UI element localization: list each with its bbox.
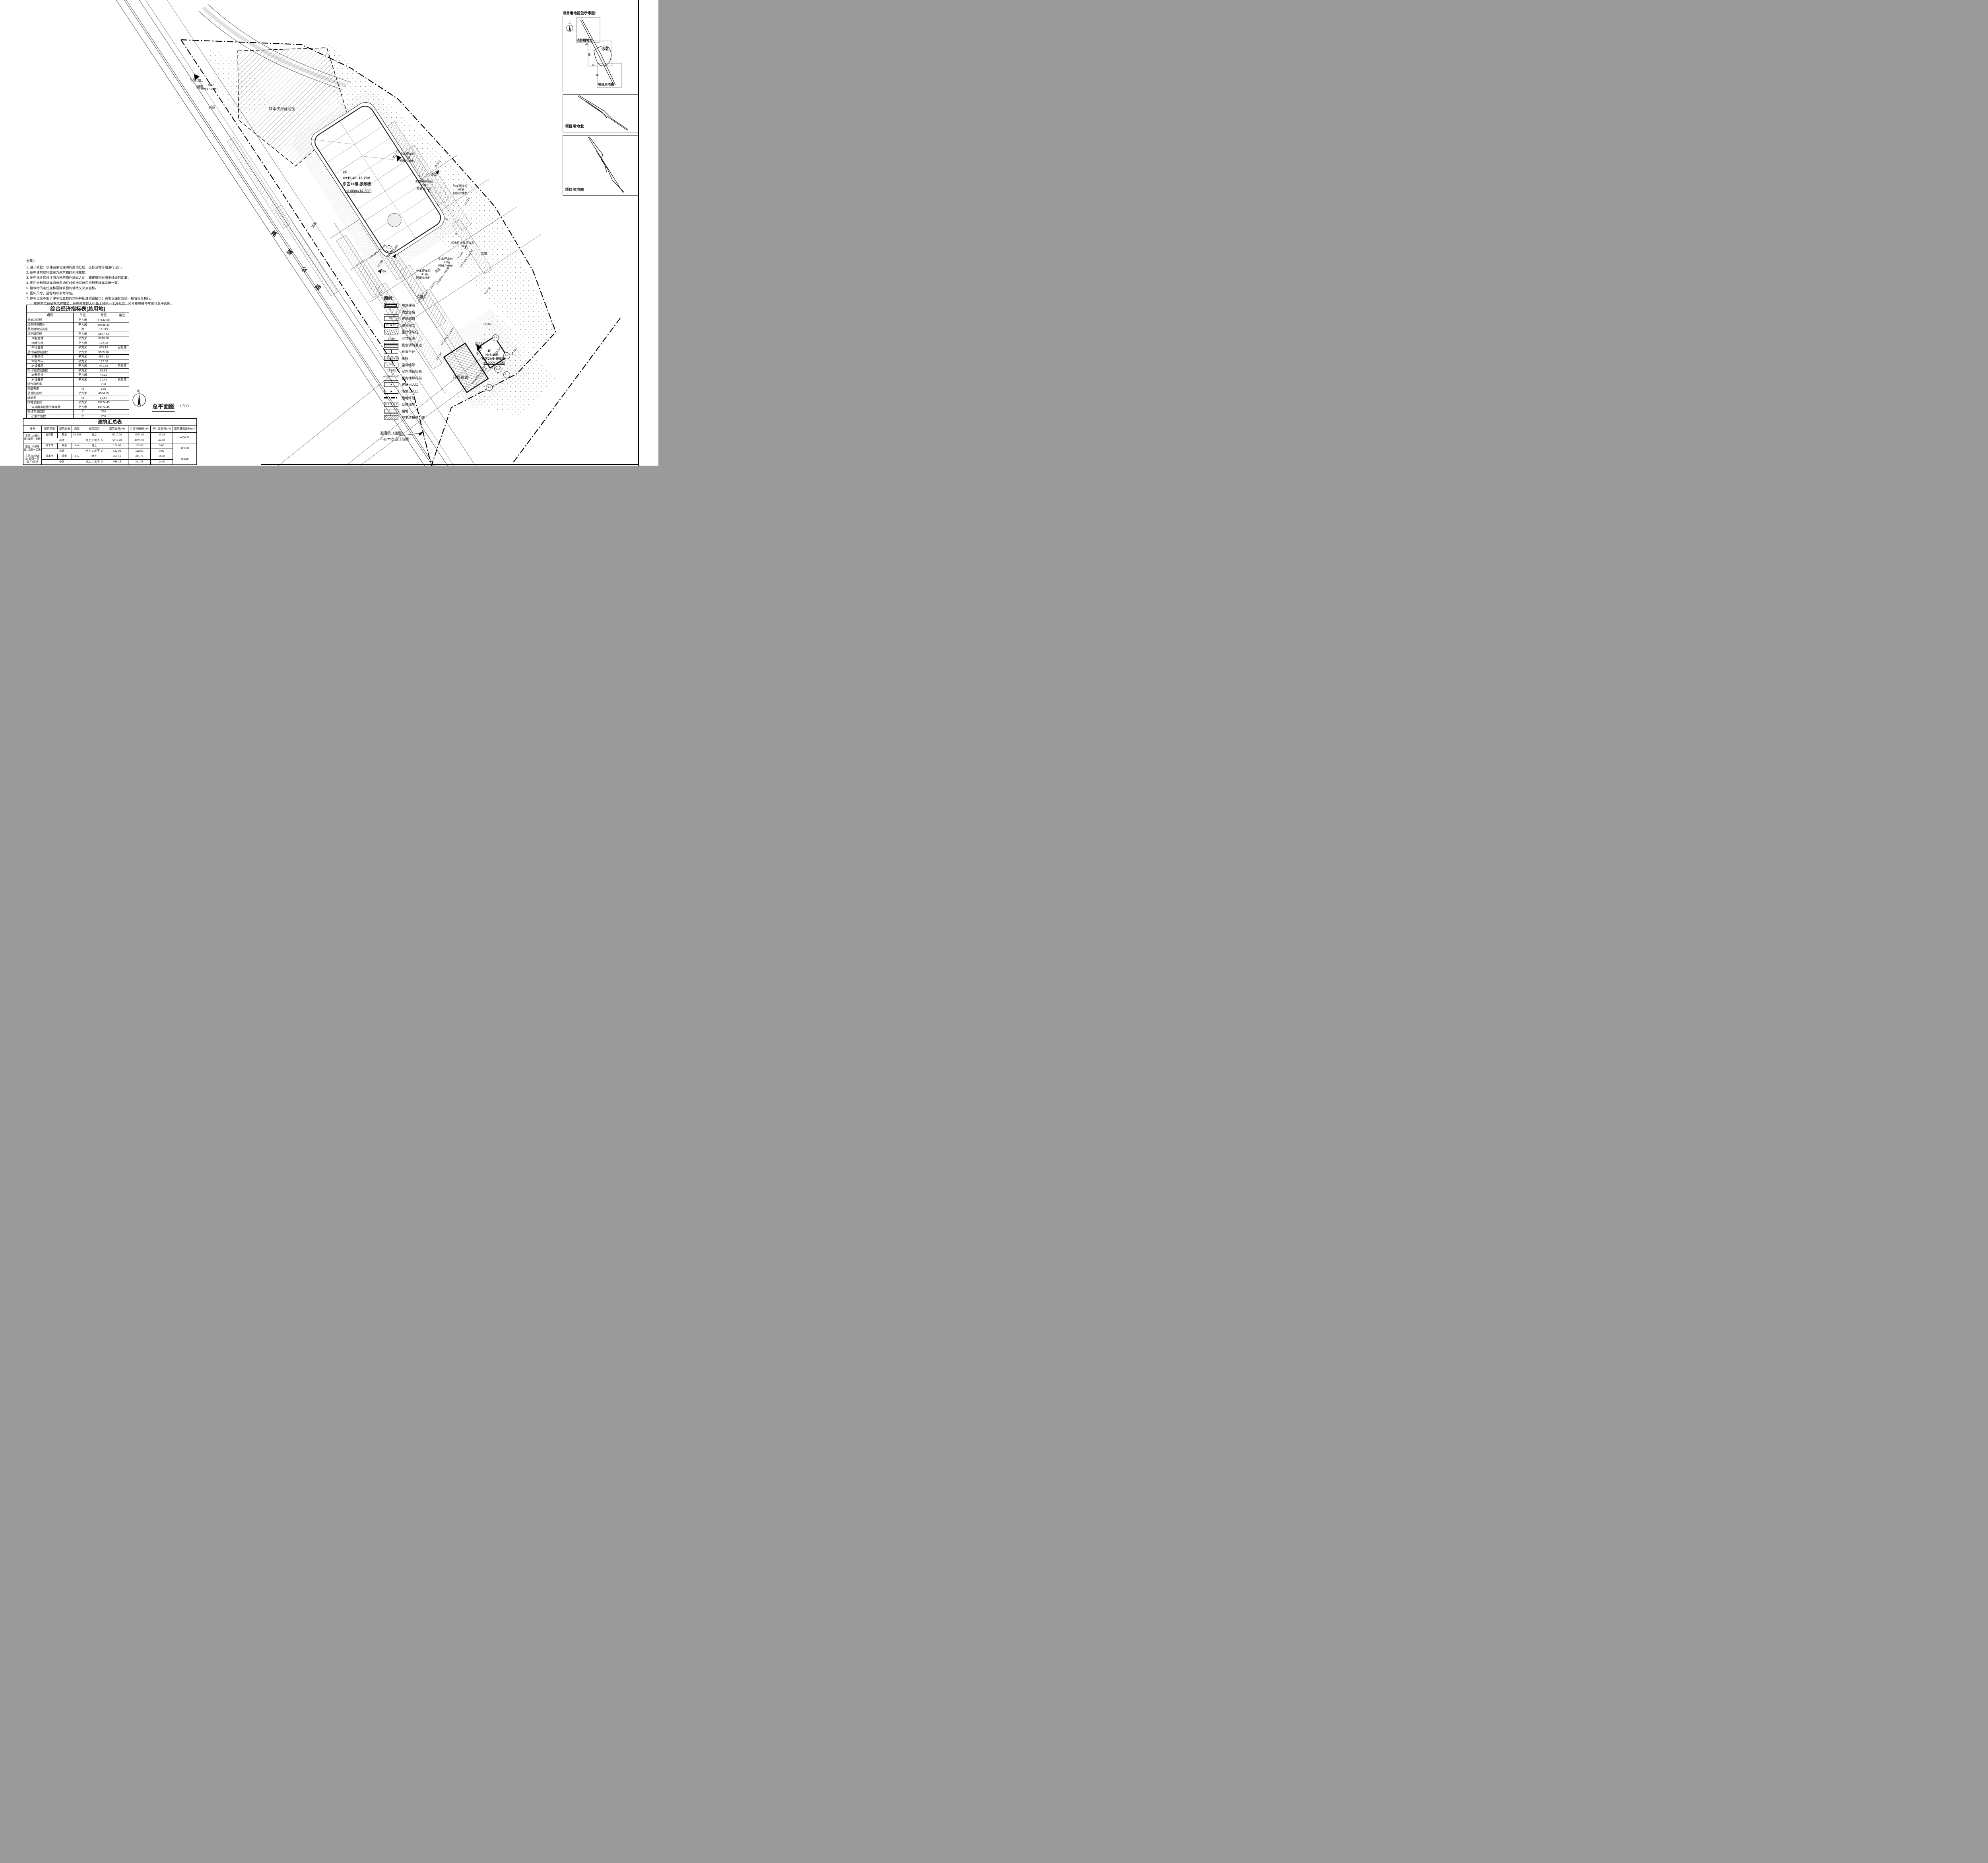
legend-item: 室外停车位 [384,328,464,335]
eco-cell-value: 0.11 [92,382,115,387]
legend-item-label: 尺寸标注 [402,336,415,341]
legend-item-label: 公共绿地 [402,402,415,407]
eco-cell-unit: 平方米 [74,391,92,396]
map-title: 总平面图 [152,402,175,412]
legend-item-label: 规划建筑 [402,303,415,308]
legend-item: 规划道路 [384,309,464,316]
eco-cell-item: 绿地率 [27,396,74,400]
eco-cell-value: 290 [92,410,115,414]
legend-swatch-icon [384,343,398,348]
eco-cell-value: 13874.45 [92,405,115,410]
eco-cell-value: 122.08 [92,341,115,346]
eco-cell-value: 9.03 [92,387,115,391]
sheet-border-right [638,0,639,466]
accessible-parking-icon: ♿ [446,218,448,221]
site-south-panel: 项目用地南 [563,135,639,196]
road-char: 路 [596,73,599,77]
legend-item-label: 建筑编号 [402,363,415,367]
eco-table-row: 3#设备房 平方米 456.16 已报建 [27,346,129,350]
eco-cell-value: 13874.45 [92,400,115,405]
legend-item: 13.890 ▼ 室外地台标高 [384,368,464,375]
legend-swatch-icon: X=2613321.333 Y=38401975.027 [384,356,398,361]
eco-cell-unit: 平方米 [74,359,92,364]
legend-swatch-text2: ▼ [390,372,392,374]
eco-cell-note [115,327,129,332]
eco-table-row: 公共服务设施所属绿地 平方米 13874.45 [27,405,129,410]
eco-col-note: 备注 [115,313,129,318]
note-line: 1. 设计依据：以建设单位提供的用地红线，坐标及地形图进行设计。 [26,265,257,270]
eco-table-row: 规划建设用地 平方米 50788.33 [27,322,129,327]
eco-cell-value: 61.68 [92,368,115,373]
legend-item: H=11.4m 建筑高度 [384,322,464,329]
economic-indicator-table: 综合经济指标表(总用地) 项目 单位 数值 备注 用地总面积 平方米 57142… [26,305,129,423]
eco-cell-unit: 平方米 [74,373,92,378]
legend-title: 图例： [384,295,464,301]
eco-cell-unit: 平方米 [74,318,92,323]
eco-table-row: 绿地总面积 平方米 13874.45 [27,400,129,405]
eco-cell-item: 1#服务楼 [27,373,74,378]
eco-cell-note: 已报建 [115,364,129,369]
legend-swatch-text: 24.30 [388,338,395,340]
accessible-parking-icon: ♿ [418,175,421,178]
legend-item-label: 用地红线 [402,396,415,400]
eco-cell-unit: 平方米 [74,332,92,336]
eco-cell-value: 47.28 [92,373,115,378]
eco-cell-note [115,373,129,378]
notes-block: 说明： 1. 设计依据：以建设单位提供的用地红线，坐标及地形图进行设计。 2. … [26,258,257,311]
legend-swatch-icon [384,349,398,354]
legend-swatch-icon: ±0.000=14.390 ▽ [384,376,398,381]
eco-table-row: 小型车位数 个 256 [27,414,129,419]
legend-item-label: 坐标 [402,356,408,361]
legend-item-label: 建筑层数 [402,316,415,321]
legend-item: 紧急消防通道 [384,342,464,349]
eco-cell-value: 4584.95 [92,391,115,396]
eco-table-row: 3#设备房 平方米 14.40 已报建 [27,377,129,382]
legend-swatch-icon [384,415,398,420]
eco-table-row: 总基底面积 平方米 4584.95 [27,391,129,396]
legend-item-label: 场地出入口 [402,389,419,394]
legend-swatch-icon [384,409,398,414]
legend-swatch-icon: 1#楼 [384,363,398,367]
eco-cell-unit: 平方米 [74,346,92,350]
eco-cell-unit: % [74,387,92,391]
eco-cell-item: 用地总面积 [27,318,74,323]
eco-cell-note [115,391,129,396]
legend-item: 转弯半径 [384,348,464,355]
summary-subtotal-row: 小计 地上: 2 地下: 0 5019.204971.92 47.28 [23,438,197,443]
road-char: 公 [592,62,595,66]
summary-row: 东区-3#设备房-绿建一星级-已报建 设备房规划 6.5地上 456.16441… [23,454,197,460]
legend-swatch-text: ▲ [390,390,393,393]
summary-row: 东区-2#修车库-绿建一星级 修车库规划 6.4地上 122.08122.08 … [23,443,197,449]
site-north-label: 项目用地北 [565,123,584,129]
eco-cell-value: 50788.33 [92,322,115,327]
eco-cell-value: 4971.92 [92,355,115,359]
eco-col-item: 项目 [27,313,74,318]
eco-cell-item: 机动车泊位数 [27,410,74,414]
east-area-label: 东区 [602,47,609,51]
eco-cell-note [115,410,129,414]
legend-swatch-icon [384,402,398,407]
road-char: 速 [588,52,591,56]
eco-cell-note [115,336,129,341]
eco-cell-note [115,341,129,346]
eco-cell-unit: 平方米 [74,322,92,327]
eco-cell-note [115,382,129,387]
note-line: 6. 图中尺寸，坐标均以米为单位。 [26,291,257,296]
north-area-box-label: 项目用地北 [577,38,592,43]
eco-cell-note [115,387,129,391]
eco-cell-item: 2#修车库 [27,359,74,364]
eco-cell-note [115,332,129,336]
eco-cell-unit: 平方米 [74,405,92,410]
inset-title: 项目用地区位示意图： [563,10,598,16]
legend-swatch-icon: H=11.4m [384,323,398,328]
legend-item-label: 转弯半径 [402,349,415,354]
legend-item: 24.30 尺寸标注 [384,335,464,342]
legend-swatch-icon [384,397,398,398]
eco-cell-item: 小型车位数 [27,414,74,419]
legend-swatch-icon: 24.30 [384,336,398,341]
eco-col-unit: 单位 [74,313,92,318]
accessible-parking-icon: ♿ [427,189,430,192]
legend-block: 图例： 规划建筑 规划道路 [384,295,464,421]
eco-cell-unit: 米 [74,327,92,332]
map-scale: 1:500 [180,404,189,408]
location-map-panel: 北 高 速 公 路 项目用地北 东区 项目用地南 [563,16,639,92]
compass-north-label: 北 [137,389,140,393]
legend-item-label: 室内地坪标高 [402,376,422,381]
eco-cell-unit: 平方米 [74,355,92,359]
legend-swatch-text: ▲ [390,383,393,386]
accessible-parking-icon: ♿ [437,204,439,207]
summary-subtotal-row: 小计 地上: 1 地下: 0 122.08122.08 0.00 [23,449,197,454]
eco-cell-item: 最高建筑总高度 [27,327,74,332]
eco-cell-item: 总基底面积 [27,391,74,396]
eco-table-row: 3#设备房 平方米 441.76 已报建 [27,364,129,369]
eco-cell-unit: 个 [74,414,92,419]
eco-table-row: 1#服务楼 平方米 5019.20 [27,336,129,341]
eco-cell-item: 不计容建筑面积 [27,368,74,373]
legend-item: X=2613321.333 Y=38401975.027 坐标 [384,355,464,362]
eco-table-row: 总建筑面积 平方米 5597.44 [27,332,129,336]
eco-cell-value: 256 [92,414,115,419]
eco-cell-unit: 个 [74,410,92,414]
legend-item: ±0.000=14.390 ▽ 室内地坪标高 [384,375,464,382]
eco-table-row: 用地总面积 平方米 57142.60 [27,318,129,323]
eco-cell-value: 5535.76 [92,350,115,355]
eco-cell-item: 2#修车库 [27,341,74,346]
building-summary-table: 建筑汇总表 编号建筑类型 建筑状况高度 层数范围建筑面积(m²) 计容积面积(m… [23,418,197,465]
eco-cell-item: 3#设备房 [27,377,74,382]
legend-swatch-icon: 10F [384,316,398,321]
legend-item: 公共绿地 [384,401,464,408]
eco-table-row: 1#服务楼 平方米 4971.92 [27,355,129,359]
legend-item: 用地红线 [384,394,464,401]
accessible-parking-icon: ♿ [464,247,467,250]
compass-north-label: 北 [568,21,571,25]
eco-cell-item: 建筑密度 [27,387,74,391]
legend-item-label: 建筑高度 [402,323,415,328]
eco-cell-note [115,322,129,327]
legend-item-label: 室外停车位 [402,330,419,334]
eco-table-row: 2#修车库 平方米 122.08 [27,359,129,364]
eco-table-row: 2#修车库 平方米 122.08 [27,341,129,346]
eco-cell-unit: -- [74,382,92,387]
eco-table-row: 综合容积率 -- 0.11 [27,382,129,387]
eco-cell-unit: 平方米 [74,400,92,405]
legend-swatch-text: 1#楼 [388,363,394,366]
eco-cell-note: 已报建 [115,377,129,382]
eco-table-row: 机动车泊位数 个 290 [27,410,129,414]
eco-cell-unit: 平方米 [74,377,92,382]
eco-cell-unit: 平方米 [74,341,92,346]
eco-table-row: 总计容建筑面积 平方米 5535.76 [27,350,129,355]
site-north-panel: 项目用地北 [563,94,639,132]
legend-item-label: 非本次报建范围 [402,415,425,420]
eco-cell-value: 5019.20 [92,336,115,341]
legend-swatch-icon: ▲ [384,389,398,394]
eco-table-row: 1#服务楼 平方米 47.28 [27,373,129,378]
eco-table-row: 最高建筑总高度 米 16.115 [27,327,129,332]
legend-item: 1#楼 建筑编号 [384,361,464,368]
note-line: 2. 图中建筑物轮廓线为建筑物的外墙轮廓。 [26,270,257,275]
summary-subtotal-row: 小计 地上: 1 地下: 0 456.16441.76 14.40 [23,459,197,465]
eco-cell-value: 27.57 [92,396,115,400]
eco-cell-value: 456.16 [92,346,115,350]
legend-item: ▲ 建筑出入口 [384,381,464,388]
eco-cell-note [115,414,129,419]
summary-row: 东区-1#服务楼-绿建一星级 服务楼规划 16.115地上 5019.20497… [23,433,197,438]
eco-cell-note [115,405,129,410]
legend-swatch-text2: Y=38401975.027 [385,358,399,360]
eco-cell-unit: 平方米 [74,368,92,373]
eco-cell-item: 1#服务楼 [27,336,74,341]
legend-swatch-icon: ▲ [384,382,398,387]
eco-cell-item: 总计容建筑面积 [27,350,74,355]
legend-item-label: 紧急消防通道 [402,343,422,348]
legend-item-label: 铺地 [402,409,408,414]
eco-cell-note: 已报建 [115,346,129,350]
note-line: 7. 停车位应不低于停车位总数的20%并配建预留接口；充电设施标准统一按省标准执… [26,296,257,301]
drawing-sheet: 车辆出口 辅道 辅道 绿化 S=517.85m² 非本次报建范围 高 速 公 路… [0,0,658,466]
legend-item: 非本次报建范围 [384,414,464,421]
summary-table-title: 建筑汇总表 [23,419,197,426]
eco-cell-unit: 平方米 [74,350,92,355]
eco-cell-unit: 平方米 [74,364,92,369]
legend-swatch-text2: ▽ [390,378,392,380]
eco-cell-unit: % [74,396,92,400]
legend-swatch-icon [384,330,398,334]
eco-cell-note [115,318,129,323]
eco-cell-note [115,400,129,405]
eco-cell-note [115,359,129,364]
note-line: 4. 图中坐标和标高均与用地红线坐标系统和地形图标高系统一致。 [26,280,257,286]
eco-cell-item: 3#设备房 [27,364,74,369]
eco-cell-note [115,355,129,359]
legend-swatch-text: H=11.4m [386,324,396,326]
eco-table-row: 建筑密度 % 9.03 [27,387,129,391]
legend-item: 规划建筑 [384,302,464,309]
eco-cell-value: 14.40 [92,377,115,382]
legend-item-label: 室外地台标高 [402,369,422,374]
eco-cell-item: 绿地总面积 [27,400,74,405]
eco-cell-item: 公共服务设施所属绿地 [27,405,74,410]
legend-swatch-text: 10F [389,317,393,320]
eco-cell-value: 16.115 [92,327,115,332]
legend-item: 铺地 [384,408,464,415]
eco-cell-unit: 平方米 [74,336,92,341]
eco-cell-note [115,396,129,400]
eco-cell-item: 1#服务楼 [27,355,74,359]
note-line: 3. 图中标注的尺寸均为建筑物外墙面之间，或建筑物退用地红线的距离。 [26,275,257,280]
legend-item: 10F 建筑层数 [384,315,464,322]
eco-cell-value: 5597.44 [92,332,115,336]
eco-cell-item: 3#设备房 [27,346,74,350]
notes-title: 说明： [26,258,257,264]
eco-cell-note [115,350,129,355]
sheet-border-bottom [261,464,639,465]
eco-cell-value: 122.08 [92,359,115,364]
eco-cell-item: 总建筑面积 [27,332,74,336]
legend-swatch-icon [384,310,398,315]
eco-cell-value: 57142.60 [92,318,115,323]
legend-item-label: 建筑出入口 [402,382,419,387]
eco-table-row: 绿地率 % 27.57 [27,396,129,400]
note-line: 5. 建筑物的定位坐标是建筑物的轴线交叉点坐标。 [26,286,257,291]
eco-table-title: 综合经济指标表(总用地) [27,305,129,313]
eco-cell-note [115,368,129,373]
eco-col-value: 数值 [92,313,115,318]
south-area-box-label: 项目用地南 [598,82,614,87]
site-south-label: 项目用地南 [565,186,584,192]
compass-icon [131,392,147,408]
legend-item-label: 规划道路 [402,310,415,315]
eco-cell-item: 规划建设用地 [27,322,74,327]
eco-cell-item: 综合容积率 [27,382,74,387]
legend-swatch-icon [384,303,398,308]
accessible-parking-icon: ♿ [455,232,458,235]
legend-item: ▲ 场地出入口 [384,388,464,395]
eco-table-row: 不计容建筑面积 平方米 61.68 [27,368,129,373]
legend-swatch-icon: 13.890 ▼ [384,369,398,374]
eco-cell-value: 441.76 [92,364,115,369]
